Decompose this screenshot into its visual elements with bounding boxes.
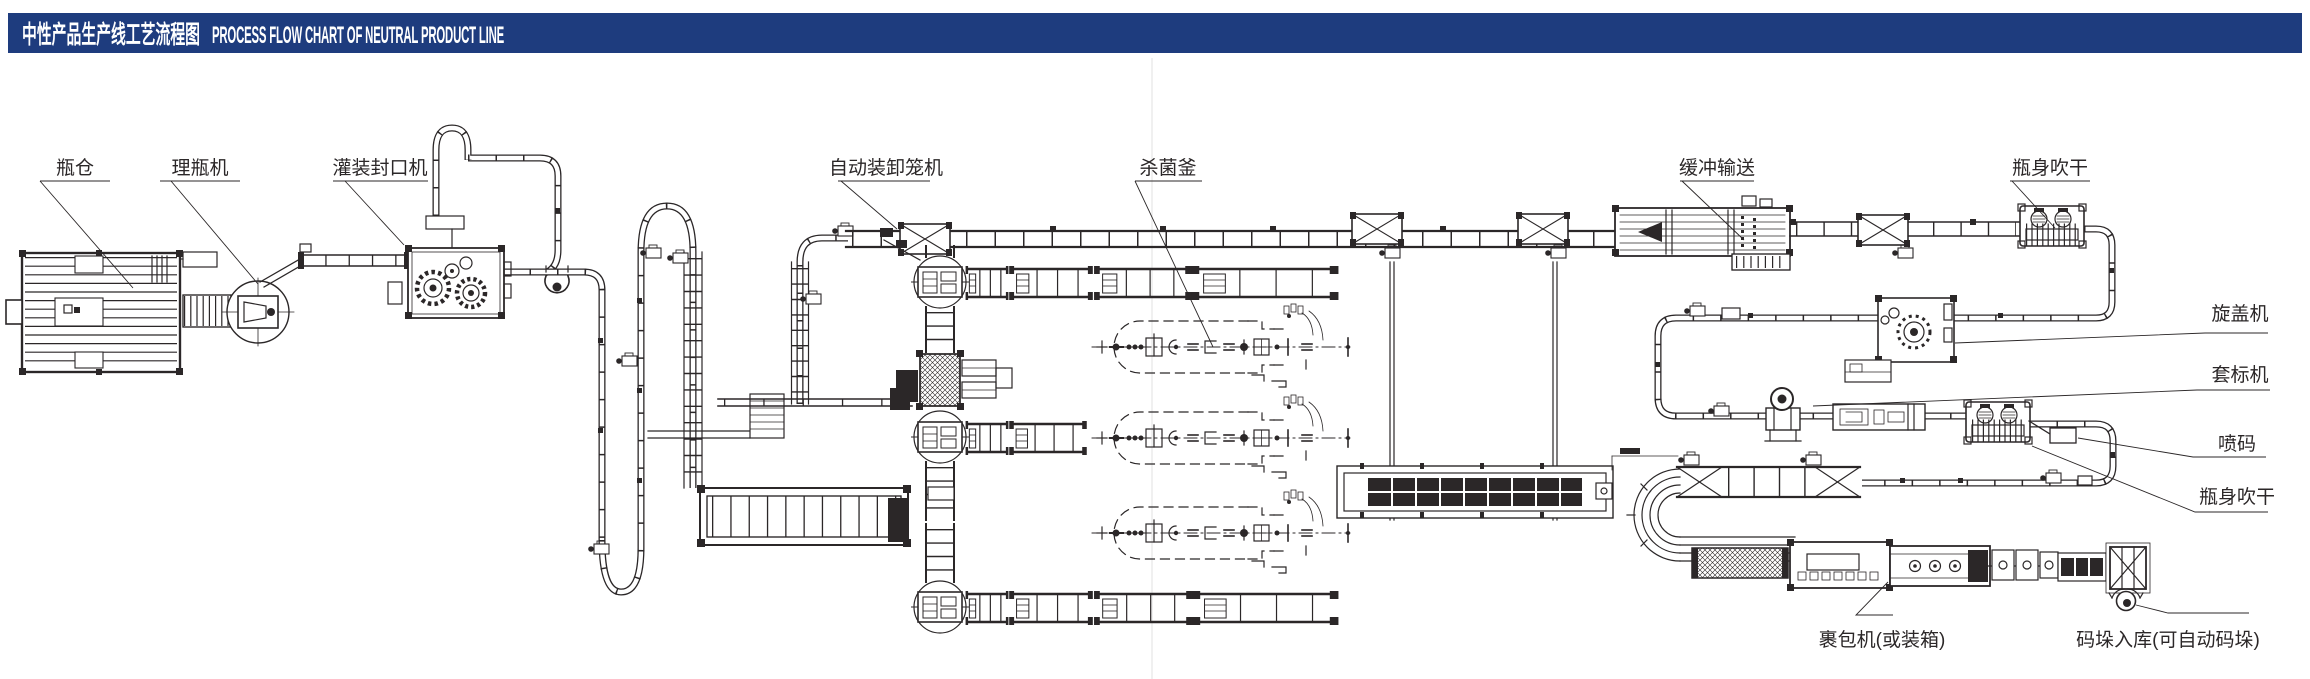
sterilization-retort-rows xyxy=(1092,304,1350,573)
palletizer-block xyxy=(2106,543,2150,611)
bottle-dryer-top xyxy=(2018,204,2086,248)
platform-stairs xyxy=(648,388,912,438)
flow-diagram: 中性产品生产线工艺流程图 PROCESS FLOW CHART OF NEUTR… xyxy=(0,0,2310,679)
label-text: 灌装封口机 xyxy=(332,157,427,179)
label-text: 裹包机(或装箱) xyxy=(1819,629,1946,651)
label-filling-capping-machine: 灌装封口机 xyxy=(332,157,428,245)
roller-link xyxy=(183,295,231,327)
sleeve-labeler-block xyxy=(1765,388,1801,441)
label-text: 瓶身吹干 xyxy=(2199,486,2275,508)
label-text: 瓶仓 xyxy=(56,157,94,179)
label-text: 套标机 xyxy=(2211,364,2268,386)
infeed-conveyor xyxy=(298,244,410,269)
label-text: 旋盖机 xyxy=(2211,303,2268,325)
wrapping-machine-block xyxy=(1692,539,1990,591)
buffer-to-dryer-conveyor xyxy=(1790,213,2022,258)
cooling-tunnel-conveyor xyxy=(1337,448,1678,518)
bottle-dryer-right xyxy=(1964,400,2032,444)
label-wrapping-machine: 裹包机(或装箱) xyxy=(1819,582,1946,651)
page-title-en: PROCESS FLOW CHART OF NEUTRAL PRODUCT LI… xyxy=(212,22,504,49)
auto-cage-loader-column xyxy=(896,246,1012,633)
bottle-unscrambler-machine xyxy=(222,259,302,346)
label-line-station xyxy=(1833,404,1925,430)
title-bar: 中性产品生产线工艺流程图 PROCESS FLOW CHART OF NEUTR… xyxy=(8,13,2302,53)
label-bottle-drying-right: 瓶身吹干 xyxy=(2032,446,2275,512)
label-palletizing-warehouse: 码垛入库(可自动码垛) xyxy=(2076,605,2260,651)
label-text: 自动装卸笼机 xyxy=(829,157,943,179)
exit-conveyor xyxy=(1988,550,2112,581)
accumulation-conveyor xyxy=(697,485,911,547)
process-flow-chart-page: 中性产品生产线工艺流程图 PROCESS FLOW CHART OF NEUTR… xyxy=(0,0,2310,679)
top-long-conveyor xyxy=(846,212,1615,260)
buffer-conveyor-machine xyxy=(1612,196,1793,270)
label-text: 杀菌釜 xyxy=(1139,157,1196,179)
label-text: 码垛入库(可自动码垛) xyxy=(2076,629,2260,651)
page-title-zh: 中性产品生产线工艺流程图 xyxy=(22,20,200,49)
label-text: 缓冲输送 xyxy=(1679,157,1755,179)
label-inkjet-coder: 喷码 xyxy=(2078,433,2266,457)
capping-machine-block xyxy=(1845,295,1957,382)
label-text: 瓶身吹干 xyxy=(2012,157,2088,179)
label-text: 理瓶机 xyxy=(171,157,228,179)
label-auto-cage-loader: 自动装卸笼机 xyxy=(829,157,943,229)
label-sterilization-retort: 杀菌釜 xyxy=(1135,157,1213,347)
label-text: 喷码 xyxy=(2218,433,2256,455)
